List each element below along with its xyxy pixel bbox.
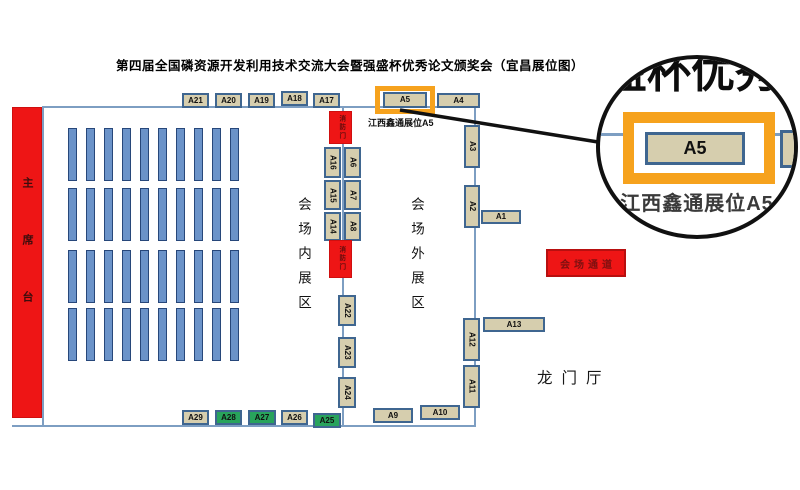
booth-A6[interactable]: A6 [344,147,361,178]
seat-bar [104,308,113,361]
fire-door-label: 消防门 [337,115,344,141]
booth-label: A24 [343,385,351,400]
booth-A18[interactable]: A18 [281,91,308,106]
zone-label-inner: 会场内展区 [293,197,313,320]
fire-door: 消防门 [329,240,352,278]
booth-A15[interactable]: A15 [324,180,341,210]
seat-bar [230,250,239,303]
booth-A2[interactable]: A2 [464,185,480,228]
booth-A8[interactable]: A8 [344,212,361,241]
seat-bar [68,308,77,361]
booth-A4[interactable]: A4 [437,93,480,108]
seat-bar [86,188,95,241]
booth-label: A8 [349,221,357,231]
seat-bar [194,188,203,241]
booth-A9[interactable]: A9 [373,408,413,423]
booth-A14[interactable]: A14 [324,212,341,241]
booth-A21[interactable]: A21 [182,93,209,108]
seat-bar [212,188,221,241]
seat-bar [176,128,185,181]
seat-bar [194,128,203,181]
booth-A1[interactable]: A1 [481,210,521,224]
booth-A3[interactable]: A3 [464,125,480,168]
seat-bar [176,188,185,241]
booth-label: A3 [468,141,476,151]
passage-box: 会场通道 [546,249,626,277]
seat-bar [86,308,95,361]
booth-label: A17 [319,97,334,105]
passage-label: 会场通道 [560,256,616,271]
booth-label: A6 [349,157,357,167]
booth-A26[interactable]: A26 [281,410,308,425]
floor-plan-page: 第四届全国磷资源开发利用技术交流大会暨强盛杯优秀论文颁奖会（宜昌展位图） 主席台… [0,0,800,490]
fire-door-label: 消防门 [337,246,344,272]
seat-bar [104,188,113,241]
seat-bar [158,250,167,303]
booth-A24[interactable]: A24 [338,377,356,408]
booth-A25[interactable]: A25 [313,413,341,428]
magnified-title-fragment: 盛杯优秀 [596,55,788,97]
booth-A28[interactable]: A28 [215,410,242,425]
stage-label: 主席台 [19,177,35,348]
booth-label: A26 [287,414,302,422]
booth-label: A18 [287,95,302,103]
booth-label: A12 [468,332,476,347]
seat-bar [122,128,131,181]
seat-bar [212,128,221,181]
booth-A13[interactable]: A13 [483,317,545,332]
booth-label: A21 [188,97,203,105]
seat-bar [230,128,239,181]
booth-A19[interactable]: A19 [248,93,275,108]
booth-label: A29 [188,414,203,422]
booth-label: A10 [433,409,448,417]
seat-bar [176,250,185,303]
seat-bar [212,308,221,361]
seat-bar [140,250,149,303]
seat-bar [140,128,149,181]
seat-bar [194,308,203,361]
seat-bar [68,250,77,303]
booth-label: A28 [221,414,236,422]
booth-label: A23 [343,345,351,360]
page-title: 第四届全国磷资源开发利用技术交流大会暨强盛杯优秀论文颁奖会（宜昌展位图） [0,55,700,74]
booth-A10[interactable]: A10 [420,405,460,420]
magnifier-circle: 盛杯优秀 A5 江西鑫通展位A5 [596,55,798,239]
seat-bar [230,188,239,241]
a5-highlight-frame [375,86,435,114]
seat-bar [158,128,167,181]
seat-bar [68,188,77,241]
wall-left [42,106,44,427]
booth-label: A20 [221,97,236,105]
seat-bar [86,128,95,181]
seat-bar [122,250,131,303]
booth-label: A19 [254,97,269,105]
seat-bar [194,250,203,303]
booth-A27[interactable]: A27 [248,410,276,425]
booth-A7[interactable]: A7 [344,180,361,210]
booth-A23[interactable]: A23 [338,337,356,368]
seat-bar [104,250,113,303]
booth-label: A14 [329,219,337,234]
seat-bar [212,250,221,303]
seat-bar [140,308,149,361]
booth-label: A4 [453,97,463,105]
wall-bottom [12,425,476,427]
a5-annotation: 江西鑫通展位A5 [368,116,434,129]
magnified-booth-a5: A5 [645,132,745,165]
booth-label: A1 [496,213,506,221]
booth-label: A27 [255,414,270,422]
booth-A20[interactable]: A20 [215,93,242,108]
booth-label: A16 [329,155,337,170]
booth-A11[interactable]: A11 [463,365,480,408]
seat-bar [158,188,167,241]
booth-A12[interactable]: A12 [463,318,480,361]
seat-bar [176,308,185,361]
seat-bar [86,250,95,303]
seat-bar [230,308,239,361]
magnified-caption: 江西鑫通展位A5 [600,187,794,216]
seat-bar [68,128,77,181]
fire-door: 消防门 [329,111,352,144]
seat-bar [158,308,167,361]
booth-label: A11 [468,379,476,393]
booth-A22[interactable]: A22 [338,295,356,326]
booth-A29[interactable]: A29 [182,410,209,425]
seat-bar [140,188,149,241]
booth-label: A9 [388,412,398,420]
lobby-label: 龙门厅 [537,366,611,388]
stage-area: 主席台 [12,107,42,418]
magnified-booth-a4-sliver [780,130,798,168]
zone-label-outer: 会场外展区 [406,197,426,320]
booth-label: A15 [329,188,337,203]
booth-A16[interactable]: A16 [324,147,341,178]
booth-label: A2 [468,201,476,211]
booth-label: A7 [349,190,357,200]
booth-label: A13 [507,321,522,329]
seat-bar [122,308,131,361]
booth-label: A25 [320,417,335,425]
seat-bar [104,128,113,181]
seat-bar [122,188,131,241]
booth-label: A22 [343,303,351,318]
booth-A17[interactable]: A17 [313,93,340,108]
